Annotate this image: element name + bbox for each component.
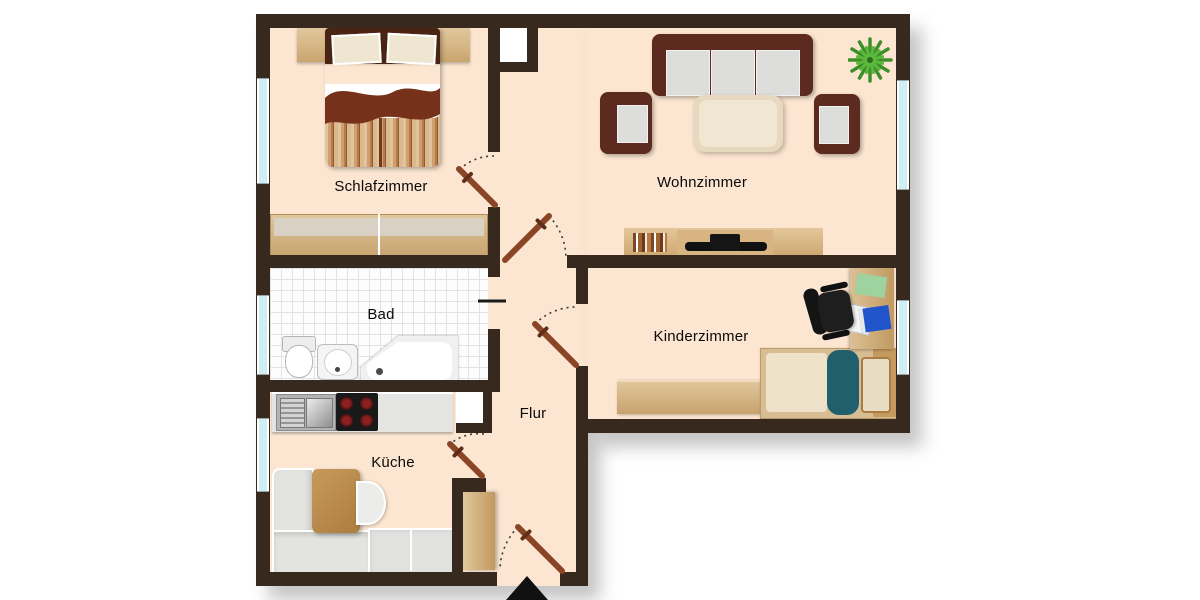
desk [850, 267, 894, 349]
wall [256, 14, 910, 28]
wall [567, 255, 896, 268]
wall [500, 62, 538, 72]
toilet [282, 336, 314, 377]
window-wohnzimmer [897, 80, 909, 190]
coffee-table [693, 95, 783, 152]
wall [576, 366, 588, 572]
armchair-left [600, 92, 652, 154]
armchair-right-cushion [819, 106, 849, 144]
window-kueche [257, 418, 269, 492]
kitchen-sink [276, 394, 336, 431]
toilet-bowl [285, 345, 313, 378]
shaft [456, 392, 483, 423]
wall [256, 572, 497, 586]
sink-drainboard [280, 398, 305, 428]
room-label-schlafzimmer: Schlafzimmer [320, 178, 442, 195]
wall [456, 423, 492, 433]
sofa [652, 34, 813, 96]
bed-pillow-left [331, 33, 382, 66]
sofa-cushion-2 [711, 50, 755, 96]
burner [360, 397, 373, 410]
sofa-cushion-1 [666, 50, 710, 96]
room-label-kueche: Küche [363, 454, 423, 471]
wall [588, 419, 910, 433]
kids-mattress [766, 353, 827, 412]
window-schlafzimmer [257, 78, 269, 184]
room-label-bad: Bad [351, 306, 411, 323]
entrance-arrow [506, 576, 548, 600]
armchair-right [814, 94, 860, 154]
green-paper [855, 273, 888, 298]
books [633, 233, 667, 252]
wall [270, 255, 488, 268]
wall [452, 478, 486, 492]
wardrobe [270, 214, 488, 258]
kids-pillow [861, 357, 891, 413]
wall [452, 492, 463, 572]
wall [576, 268, 588, 304]
counter-divider [410, 530, 412, 571]
burner [340, 397, 353, 410]
washbasin-drain [335, 367, 340, 372]
coffee-table-top [699, 100, 777, 147]
wardrobe-divider [378, 214, 380, 258]
sofa-cushion-3 [756, 50, 800, 96]
tv-sideboard [624, 228, 823, 257]
hall-wardrobe [463, 492, 495, 570]
blue-book [858, 305, 891, 333]
tv-stand [710, 234, 740, 251]
window-kinderzimmer [897, 300, 909, 375]
room-label-wohnzimmer: Wohnzimmer [642, 174, 762, 191]
wall [270, 380, 492, 392]
window-bad [257, 295, 269, 375]
corner-bench-bottom [272, 530, 372, 577]
burner [360, 414, 373, 427]
room-label-flur: Flur [503, 405, 563, 422]
wall [488, 28, 500, 152]
room-label-kinderzimmer: Kinderzimmer [641, 328, 761, 345]
stove [336, 393, 378, 431]
bed-pillow-right [386, 33, 437, 66]
bathtub-drain [376, 368, 383, 375]
floorplan: Schlafzimmer Wohnzimmer Bad Kinderzimmer… [0, 0, 1200, 600]
teal-blanket [827, 350, 859, 415]
double-bed [325, 28, 440, 167]
bed-blanket [325, 76, 440, 138]
kids-sideboard [617, 380, 762, 414]
burner [340, 414, 353, 427]
washbasin [317, 344, 358, 380]
sink-basin [306, 398, 333, 428]
office-chair [808, 284, 854, 338]
armchair-left-cushion [617, 105, 648, 143]
kids-bed [760, 348, 898, 419]
shaft [500, 28, 527, 62]
bathtub [361, 336, 458, 386]
kitchen-counter-2 [368, 528, 456, 577]
wall [488, 207, 500, 277]
chair-seat [816, 288, 855, 333]
dining-table [312, 469, 360, 533]
wall [560, 572, 588, 586]
